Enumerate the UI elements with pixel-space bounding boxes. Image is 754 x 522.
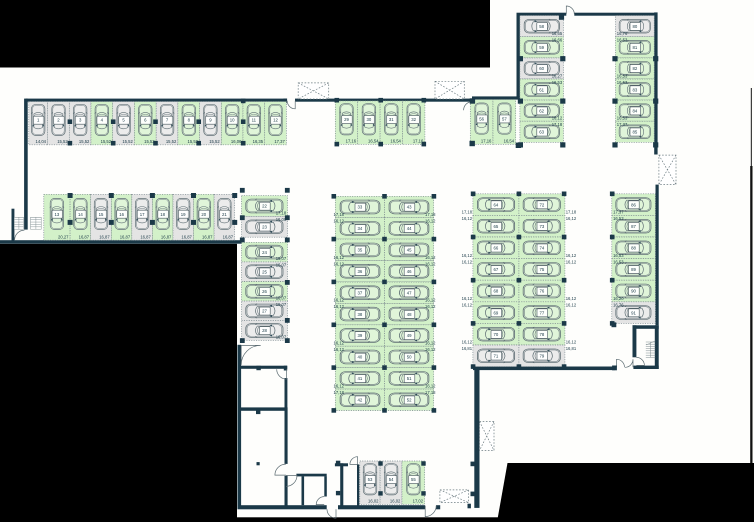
svg-text:75: 75 bbox=[540, 267, 545, 272]
svg-text:70: 70 bbox=[494, 332, 499, 337]
svg-text:42: 42 bbox=[358, 398, 363, 403]
svg-text:15,52: 15,52 bbox=[57, 139, 68, 144]
svg-text:16,53: 16,53 bbox=[617, 80, 628, 85]
svg-text:16,53: 16,53 bbox=[617, 38, 628, 43]
svg-text:16,12: 16,12 bbox=[552, 116, 563, 121]
svg-text:25: 25 bbox=[262, 269, 267, 274]
svg-text:48: 48 bbox=[407, 312, 412, 317]
svg-text:16,12: 16,12 bbox=[334, 304, 345, 309]
svg-text:16,12: 16,12 bbox=[334, 347, 345, 352]
svg-text:44: 44 bbox=[407, 226, 412, 231]
svg-text:17,18: 17,18 bbox=[462, 210, 473, 215]
svg-text:16,12: 16,12 bbox=[334, 255, 345, 260]
svg-text:83: 83 bbox=[633, 87, 638, 92]
svg-text:52: 52 bbox=[407, 398, 412, 403]
svg-text:77: 77 bbox=[540, 310, 545, 315]
svg-text:55: 55 bbox=[411, 477, 416, 482]
svg-text:16,12: 16,12 bbox=[425, 261, 436, 266]
svg-text:16,07: 16,07 bbox=[276, 302, 287, 307]
svg-text:16,87: 16,87 bbox=[223, 234, 234, 239]
svg-text:17,16: 17,16 bbox=[346, 139, 357, 144]
svg-text:16,66: 16,66 bbox=[552, 38, 563, 43]
svg-text:16,12: 16,12 bbox=[425, 347, 436, 352]
svg-text:16,87: 16,87 bbox=[161, 234, 172, 239]
svg-text:16,06: 16,06 bbox=[231, 139, 242, 144]
svg-text:16,12: 16,12 bbox=[462, 259, 473, 264]
svg-text:15,52: 15,52 bbox=[101, 139, 112, 144]
svg-text:31: 31 bbox=[389, 117, 394, 122]
svg-text:16,12: 16,12 bbox=[566, 339, 577, 344]
svg-text:81: 81 bbox=[633, 45, 638, 50]
svg-text:51: 51 bbox=[407, 376, 412, 381]
svg-text:16,20: 16,20 bbox=[613, 296, 624, 301]
svg-text:30: 30 bbox=[367, 117, 372, 122]
svg-text:15,52: 15,52 bbox=[209, 139, 220, 144]
svg-text:16,12: 16,12 bbox=[334, 383, 345, 388]
svg-text:65: 65 bbox=[494, 224, 499, 229]
svg-text:84: 84 bbox=[633, 108, 638, 113]
svg-text:16,12: 16,12 bbox=[334, 219, 345, 224]
svg-text:43: 43 bbox=[407, 205, 412, 210]
svg-text:39: 39 bbox=[358, 333, 363, 338]
svg-text:57: 57 bbox=[502, 116, 507, 121]
svg-text:58: 58 bbox=[539, 24, 544, 29]
svg-text:17,18: 17,18 bbox=[552, 122, 563, 127]
svg-text:59: 59 bbox=[539, 45, 544, 50]
svg-text:82: 82 bbox=[633, 66, 638, 71]
svg-text:15: 15 bbox=[99, 212, 104, 217]
svg-text:17,37: 17,37 bbox=[617, 122, 628, 127]
svg-text:12: 12 bbox=[273, 118, 278, 123]
svg-text:16,12: 16,12 bbox=[566, 253, 577, 258]
svg-text:86: 86 bbox=[631, 202, 636, 207]
svg-text:17,16: 17,16 bbox=[481, 139, 492, 144]
svg-text:90: 90 bbox=[631, 289, 636, 294]
svg-text:19: 19 bbox=[181, 212, 186, 217]
svg-text:16,12: 16,12 bbox=[462, 216, 473, 221]
svg-text:16,87: 16,87 bbox=[120, 234, 131, 239]
svg-text:20,27: 20,27 bbox=[58, 234, 69, 239]
svg-text:67: 67 bbox=[494, 267, 499, 272]
svg-text:15,52: 15,52 bbox=[79, 139, 90, 144]
svg-text:78: 78 bbox=[540, 332, 545, 337]
svg-text:16,12: 16,12 bbox=[334, 341, 345, 346]
svg-text:17,18: 17,18 bbox=[425, 390, 436, 395]
svg-text:64: 64 bbox=[494, 202, 499, 207]
svg-text:32: 32 bbox=[411, 117, 416, 122]
svg-text:13: 13 bbox=[55, 212, 60, 217]
svg-text:50: 50 bbox=[407, 355, 412, 360]
svg-text:34: 34 bbox=[358, 226, 363, 231]
svg-text:16,76: 16,76 bbox=[613, 303, 624, 308]
svg-text:80: 80 bbox=[633, 24, 638, 29]
svg-text:62: 62 bbox=[539, 108, 544, 113]
svg-text:16,02: 16,02 bbox=[368, 499, 379, 504]
svg-text:17,02: 17,02 bbox=[413, 499, 424, 504]
svg-text:73: 73 bbox=[540, 224, 545, 229]
svg-text:16,12: 16,12 bbox=[425, 383, 436, 388]
svg-text:15,52: 15,52 bbox=[166, 139, 177, 144]
svg-text:63: 63 bbox=[539, 130, 544, 135]
svg-text:11: 11 bbox=[252, 118, 257, 123]
svg-text:17,18: 17,18 bbox=[425, 212, 436, 217]
svg-text:72: 72 bbox=[540, 202, 545, 207]
svg-text:17,18: 17,18 bbox=[276, 211, 287, 216]
svg-text:17,18: 17,18 bbox=[566, 210, 577, 215]
svg-text:16,87: 16,87 bbox=[140, 234, 151, 239]
svg-text:16: 16 bbox=[119, 212, 124, 217]
svg-text:29: 29 bbox=[344, 117, 349, 122]
svg-text:16,27: 16,27 bbox=[552, 73, 563, 78]
svg-text:49: 49 bbox=[407, 333, 412, 338]
svg-text:16,53: 16,53 bbox=[552, 80, 563, 85]
svg-text:40: 40 bbox=[358, 355, 363, 360]
svg-text:16,53: 16,53 bbox=[617, 73, 628, 78]
svg-text:16,87: 16,87 bbox=[202, 234, 213, 239]
svg-text:17,37: 17,37 bbox=[274, 139, 285, 144]
svg-text:54: 54 bbox=[389, 477, 394, 482]
svg-text:21: 21 bbox=[222, 212, 227, 217]
svg-text:27: 27 bbox=[262, 309, 267, 314]
svg-text:16,12: 16,12 bbox=[334, 298, 345, 303]
svg-text:16,65: 16,65 bbox=[552, 31, 563, 36]
svg-text:17,18: 17,18 bbox=[334, 212, 345, 217]
svg-text:16,35: 16,35 bbox=[253, 139, 264, 144]
svg-text:16,12: 16,12 bbox=[425, 304, 436, 309]
svg-text:16,81: 16,81 bbox=[462, 346, 473, 351]
svg-text:16,12: 16,12 bbox=[425, 255, 436, 260]
svg-text:16,53: 16,53 bbox=[613, 259, 624, 264]
svg-text:16,12: 16,12 bbox=[566, 216, 577, 221]
svg-text:16,12: 16,12 bbox=[566, 296, 577, 301]
svg-text:41: 41 bbox=[358, 376, 363, 381]
svg-text:16,54: 16,54 bbox=[368, 139, 379, 144]
svg-text:79: 79 bbox=[540, 354, 545, 359]
svg-text:17: 17 bbox=[140, 212, 145, 217]
svg-text:16,07: 16,07 bbox=[276, 256, 287, 261]
svg-text:56: 56 bbox=[479, 116, 484, 121]
svg-text:69: 69 bbox=[494, 310, 499, 315]
svg-text:61: 61 bbox=[539, 87, 544, 92]
svg-text:16,12: 16,12 bbox=[566, 303, 577, 308]
svg-text:76: 76 bbox=[540, 289, 545, 294]
svg-text:38: 38 bbox=[358, 312, 363, 317]
svg-text:26: 26 bbox=[262, 289, 267, 294]
svg-text:71: 71 bbox=[494, 354, 499, 359]
svg-text:33: 33 bbox=[358, 205, 363, 210]
svg-text:28: 28 bbox=[262, 328, 267, 333]
svg-text:16,87: 16,87 bbox=[99, 234, 110, 239]
svg-text:18: 18 bbox=[160, 212, 165, 217]
svg-text:16,54: 16,54 bbox=[504, 139, 515, 144]
svg-text:89: 89 bbox=[631, 267, 636, 272]
svg-text:16,02: 16,02 bbox=[390, 499, 401, 504]
svg-text:85: 85 bbox=[633, 130, 638, 135]
svg-text:68: 68 bbox=[494, 289, 499, 294]
svg-text:37: 37 bbox=[358, 290, 363, 295]
svg-text:15,52: 15,52 bbox=[122, 139, 133, 144]
svg-text:66: 66 bbox=[494, 246, 499, 251]
svg-text:10: 10 bbox=[230, 118, 235, 123]
svg-text:16,53: 16,53 bbox=[613, 253, 624, 258]
svg-text:35: 35 bbox=[358, 248, 363, 253]
svg-text:17,18: 17,18 bbox=[334, 390, 345, 395]
svg-text:45: 45 bbox=[407, 248, 412, 253]
svg-text:16,12: 16,12 bbox=[425, 298, 436, 303]
svg-text:20: 20 bbox=[201, 212, 206, 217]
svg-text:16,07: 16,07 bbox=[276, 295, 287, 300]
svg-text:16,07: 16,07 bbox=[276, 263, 287, 268]
svg-text:17,37: 17,37 bbox=[613, 210, 624, 215]
svg-text:91: 91 bbox=[631, 310, 636, 315]
svg-text:23: 23 bbox=[262, 225, 267, 230]
svg-text:16,81: 16,81 bbox=[566, 346, 577, 351]
svg-text:16,12: 16,12 bbox=[425, 341, 436, 346]
svg-text:16,54: 16,54 bbox=[390, 139, 401, 144]
svg-text:16,76: 16,76 bbox=[617, 31, 628, 36]
svg-text:46: 46 bbox=[407, 269, 412, 274]
svg-text:22: 22 bbox=[262, 204, 267, 209]
svg-text:14: 14 bbox=[78, 212, 83, 217]
svg-text:87: 87 bbox=[631, 224, 636, 229]
svg-text:16,87: 16,87 bbox=[79, 234, 90, 239]
svg-text:53: 53 bbox=[368, 477, 373, 482]
svg-text:36: 36 bbox=[358, 269, 363, 274]
svg-text:16,53: 16,53 bbox=[613, 216, 624, 221]
svg-text:16,87: 16,87 bbox=[181, 234, 192, 239]
svg-text:16,12: 16,12 bbox=[566, 259, 577, 264]
svg-text:24: 24 bbox=[262, 250, 267, 255]
svg-text:16,12: 16,12 bbox=[334, 261, 345, 266]
svg-text:60: 60 bbox=[539, 66, 544, 71]
svg-text:16,12: 16,12 bbox=[462, 339, 473, 344]
svg-text:88: 88 bbox=[631, 246, 636, 251]
svg-text:16,12: 16,12 bbox=[462, 253, 473, 258]
svg-text:47: 47 bbox=[407, 290, 412, 295]
svg-text:14,04: 14,04 bbox=[36, 139, 47, 144]
svg-text:16,12: 16,12 bbox=[425, 219, 436, 224]
svg-text:74: 74 bbox=[540, 246, 545, 251]
svg-text:16,12: 16,12 bbox=[462, 303, 473, 308]
svg-text:16,12: 16,12 bbox=[462, 296, 473, 301]
svg-text:16,53: 16,53 bbox=[617, 116, 628, 121]
